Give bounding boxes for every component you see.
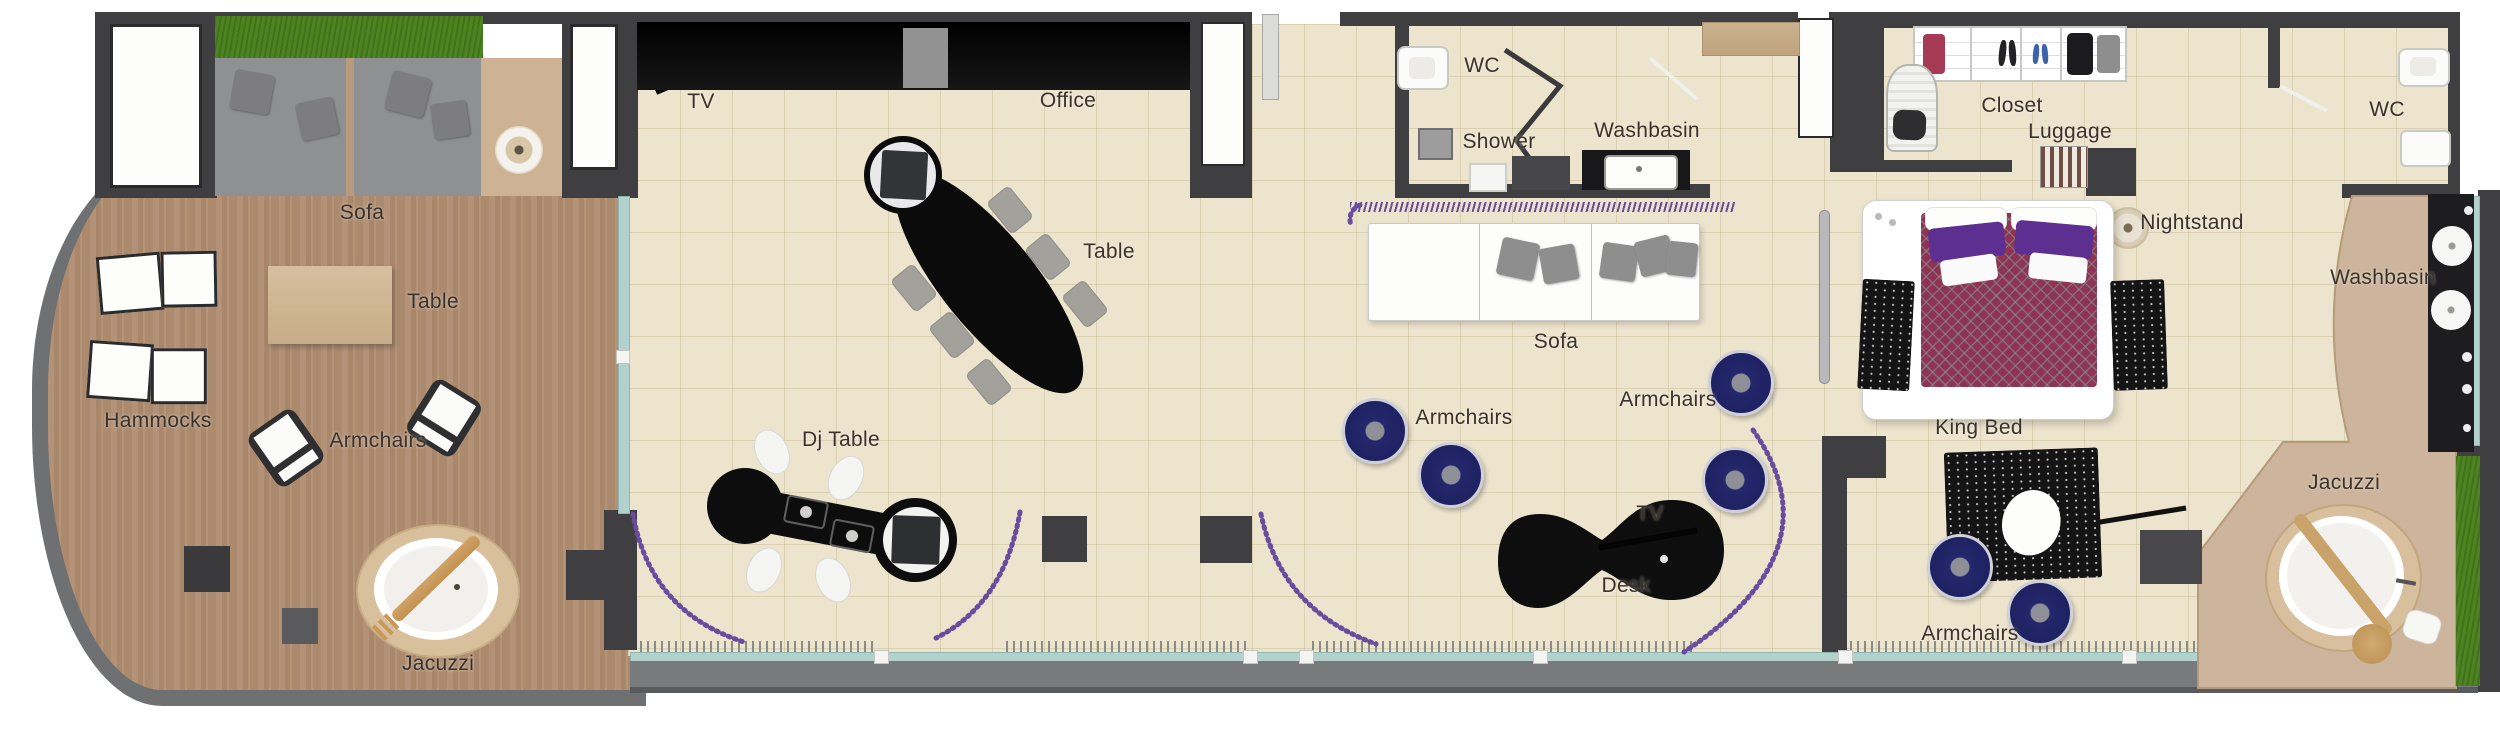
terrace-small-stool: [282, 608, 318, 644]
closet-black-garment: [2067, 33, 2093, 75]
bedroom-armchair: [1927, 534, 1993, 600]
label-terrace-jacuzzi: Jacuzzi: [402, 652, 474, 676]
ironing-board: [1886, 64, 1938, 152]
washbasin-counter: [1582, 150, 1690, 190]
media-wall-tv-panel: [903, 28, 948, 88]
bathroom-curtain-band: [1350, 202, 1735, 212]
fur-rug: [1857, 279, 1915, 392]
label-terrace-armchairs: Armchairs: [329, 429, 426, 453]
living-armchair: [1708, 350, 1774, 416]
office-table-screen: [880, 150, 928, 200]
label-living-armchairs-right: Armchairs: [1619, 388, 1716, 412]
label-bedroom-wc: WC: [2369, 98, 2405, 122]
bedroom-washbasin-counter: [2428, 194, 2474, 452]
label-bathroom-wc: WC: [1464, 54, 1500, 78]
desk-detail-dot: [1660, 555, 1668, 563]
label-king-bed: King Bed: [1935, 416, 2023, 440]
closet-blue-shoe: [2032, 44, 2040, 64]
jacuzzi-plank-knob: [2352, 624, 2392, 664]
label-bath-washbasin: Washbasin: [1594, 119, 1700, 143]
label-bedroom-washbasin: Washbasin: [2330, 266, 2436, 290]
label-nightstand: Nightstand: [2140, 211, 2243, 235]
label-terrace-sofa: Sofa: [340, 201, 384, 225]
bedroom-wc-door-swing: [2280, 86, 2327, 111]
washbasin-bowl: [2432, 226, 2472, 266]
deck-grass-strip: [2456, 456, 2480, 686]
hall-console: [1702, 22, 1800, 56]
hammocks-pair-1: [96, 247, 219, 315]
label-living-sofa: Sofa: [1534, 330, 1578, 354]
shower-head: [1418, 128, 1453, 160]
closet-gray-garment: [2097, 35, 2120, 73]
floor-lamp-arm: [2088, 508, 2186, 524]
label-office-tv: TV: [687, 90, 714, 114]
label-living-armchairs-left: Armchairs: [1415, 406, 1512, 430]
living-sofa: [1368, 223, 1700, 321]
fur-rug: [2110, 279, 2168, 391]
label-desk: Desk: [1601, 574, 1650, 598]
label-terrace-table: Table: [407, 290, 459, 314]
rug-side-table: [1994, 483, 2068, 562]
terrace-table: [268, 266, 392, 344]
label-bedroom-jacuzzi: Jacuzzi: [2308, 471, 2380, 495]
luggage-rack: [2040, 146, 2088, 188]
label-dj-table: Dj Table: [802, 428, 880, 452]
label-shower: Shower: [1462, 130, 1535, 154]
label-luggage: Luggage: [2028, 120, 2112, 144]
shower-tray: [1469, 163, 1507, 192]
entrance-door-leaf: [1262, 14, 1279, 100]
bedroom-gray-mat: [2140, 530, 2202, 584]
hammocks-pair-2: [86, 340, 208, 406]
iron: [1892, 109, 1926, 140]
terrace-jacuzzi: [356, 524, 520, 658]
closet-blue-shoe: [2041, 44, 2049, 64]
living-armchair: [1702, 447, 1768, 513]
bathroom-cabinet: [1512, 156, 1570, 190]
bedroom-bidet: [2400, 130, 2451, 167]
label-office: Office: [1040, 89, 1096, 113]
label-closet: Closet: [1981, 94, 2042, 118]
floor-plan: Sofa Table Hammocks Armchairs Jacuzzi TV…: [0, 0, 2500, 750]
living-armchair: [1342, 398, 1408, 464]
label-living-tv: TV: [1636, 502, 1663, 526]
label-office-table: Table: [1083, 240, 1135, 264]
label-bedroom-armchairs: Armchairs: [1921, 622, 2018, 646]
sliding-door-rail: [1819, 210, 1830, 384]
label-hammocks: Hammocks: [104, 409, 211, 433]
closet-shoe: [1998, 40, 2008, 67]
toilet: [1397, 46, 1449, 90]
closet-shoe: [2008, 40, 2017, 66]
closet-rack: [1913, 26, 2127, 82]
terrace-dark-stool: [184, 546, 230, 592]
bathroom-door-swing: [1650, 58, 1697, 99]
living-armchair: [1418, 442, 1484, 508]
bedroom-toilet: [2398, 48, 2450, 87]
washbasin-bowl: [2431, 290, 2471, 330]
